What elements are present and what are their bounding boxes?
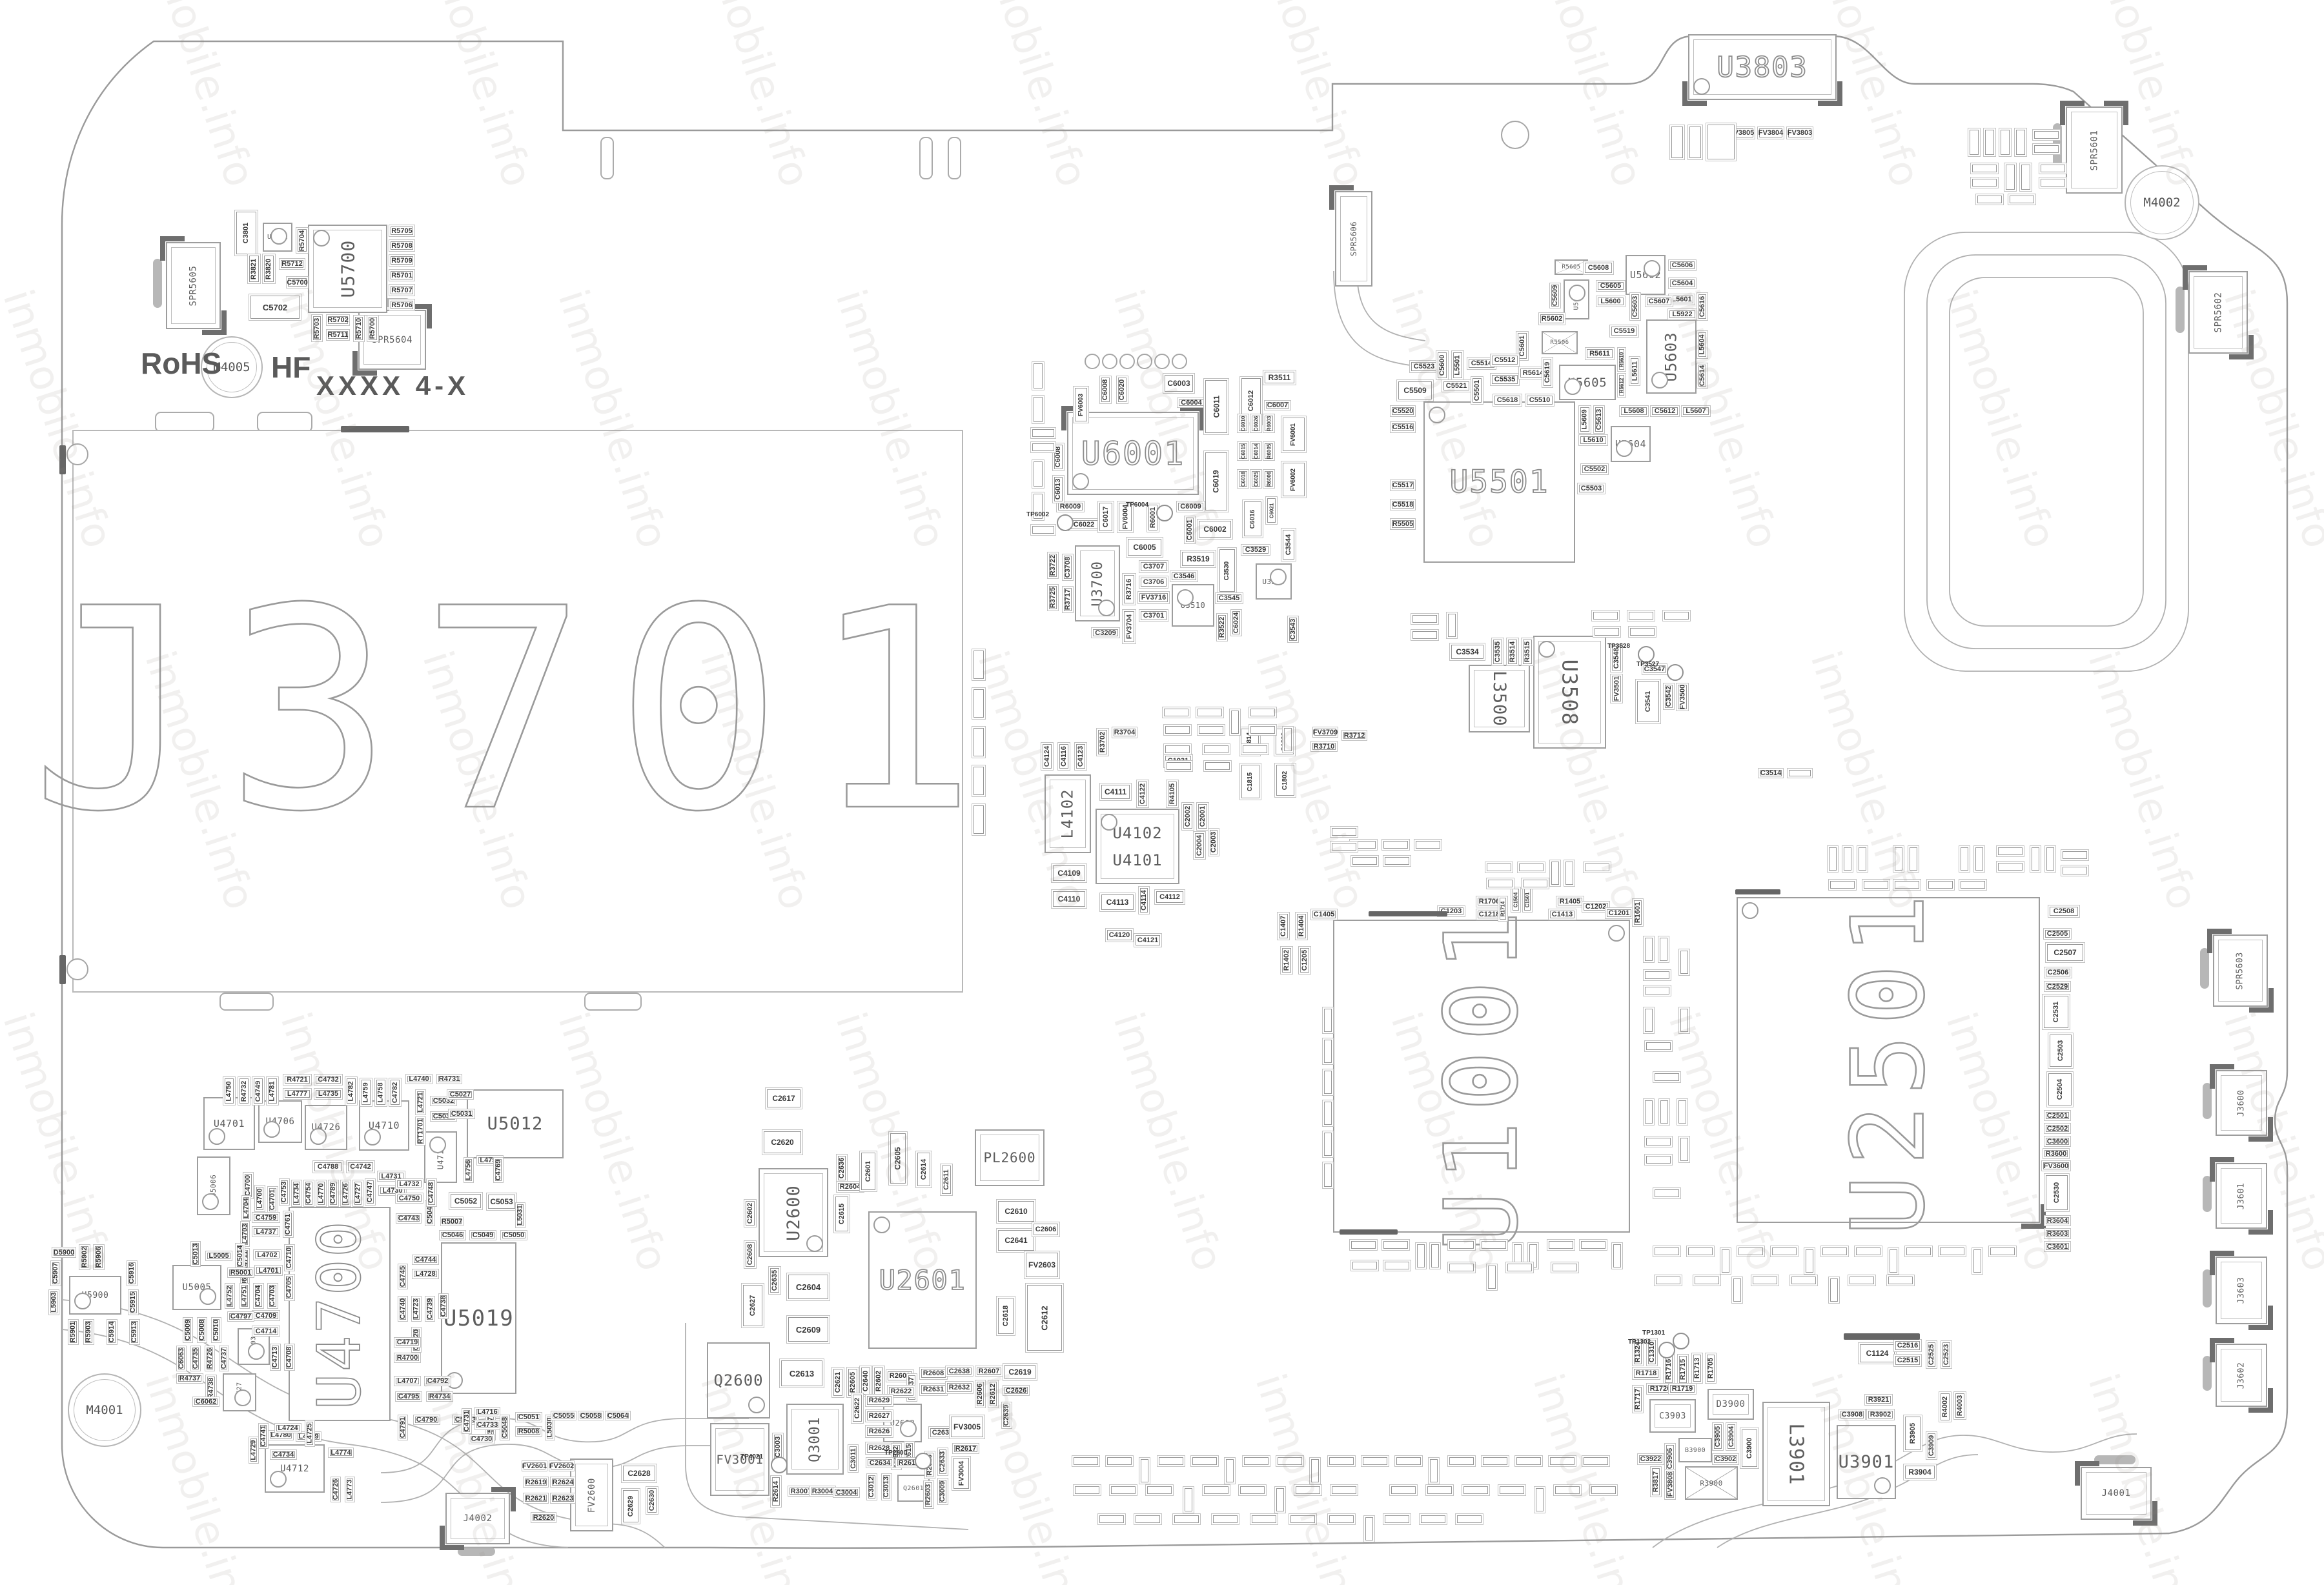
component-c4754: C4754 xyxy=(303,1180,314,1207)
component-c2002: C2002 xyxy=(1181,802,1194,831)
unlabeled-part xyxy=(1249,707,1277,718)
pin1-dot xyxy=(74,1293,91,1309)
component-c5618: C5618 xyxy=(1493,394,1522,407)
unlabeled-part xyxy=(1643,1098,1655,1126)
component-label: C6015 xyxy=(1240,443,1246,459)
component-label: FV3004 xyxy=(957,1461,965,1486)
component-c6010: C6010 xyxy=(1237,414,1249,433)
unlabeled-part xyxy=(2004,163,2017,192)
unlabeled-part xyxy=(1322,1131,1334,1158)
corner-bracket xyxy=(2133,1501,2157,1526)
corner-bracket xyxy=(160,236,185,261)
corner-bracket xyxy=(2229,335,2254,359)
component-label: C4709 xyxy=(256,1312,276,1320)
unlabeled-part xyxy=(1446,612,1458,639)
component-label: C4747 xyxy=(367,1182,374,1202)
component-label: L4701 xyxy=(258,1267,278,1275)
component-label: C4120 xyxy=(1109,931,1130,939)
component-label: C5050 xyxy=(504,1231,524,1239)
unlabeled-part xyxy=(1737,1246,1765,1257)
component-r3725: R3725 xyxy=(1047,584,1059,611)
component-label: C5501 xyxy=(1473,380,1481,401)
component-c5048: C5048 xyxy=(500,1415,510,1440)
component-l4700: L4700 xyxy=(254,1185,265,1212)
component-label: R3904 xyxy=(1908,1468,1931,1477)
component-label: R5008 xyxy=(518,1428,539,1435)
component-label: C4121 xyxy=(1137,936,1158,944)
component-l4752: L4752 xyxy=(225,1283,235,1309)
pin1-dot xyxy=(234,1389,251,1406)
component-c4114: C4114 xyxy=(1138,886,1150,914)
component-label: L4781 xyxy=(269,1081,276,1101)
component-label: C5523 xyxy=(1414,363,1434,370)
unlabeled-part xyxy=(1381,1239,1410,1251)
component-c3801: C3801 xyxy=(234,210,258,256)
component-l4707: L4707 xyxy=(394,1376,421,1386)
unlabeled-part xyxy=(1447,1239,1476,1251)
component-c5520: C5520 xyxy=(1390,405,1416,417)
component-r3519: R3519 xyxy=(1180,550,1216,568)
component-l5611: L5611 xyxy=(1629,356,1640,386)
unlabeled-part xyxy=(1030,427,1056,439)
pin1-dot xyxy=(1072,473,1089,490)
component-label: C3209 xyxy=(1095,629,1116,637)
component-c4110: C4110 xyxy=(1051,889,1087,909)
test-point-label: TP6004 xyxy=(1126,501,1148,509)
component-label: C4110 xyxy=(1058,894,1081,904)
component-label: R5711 xyxy=(328,331,349,339)
component-label: R2621 xyxy=(525,1495,546,1502)
test-point-label: TP1301 xyxy=(1642,1329,1665,1337)
component-label: R6006 xyxy=(1266,471,1272,487)
test-point-tp1301 xyxy=(1673,1333,1689,1349)
component-u4713: U4713 xyxy=(424,1131,457,1183)
component-label: R2624 xyxy=(553,1479,573,1486)
component-c4726: C4726 xyxy=(331,1477,341,1502)
component-label: C4733 xyxy=(477,1421,498,1429)
pin1-dot xyxy=(270,228,287,245)
board-slot xyxy=(948,137,961,179)
mounting-hole-m4002: M4002 xyxy=(2125,165,2199,240)
component-c3530: C3530 xyxy=(1218,547,1237,594)
unlabeled-part xyxy=(1534,1486,1545,1513)
component-c6008: C6008 xyxy=(1099,376,1112,404)
component-c3545: C3545 xyxy=(1215,592,1243,604)
unlabeled-part xyxy=(1289,1513,1317,1525)
component-c3902: C3902 xyxy=(1712,1453,1739,1465)
unlabeled-part xyxy=(1165,760,1193,772)
corner-bracket xyxy=(491,1487,516,1511)
component-u5012: U5012 xyxy=(467,1089,564,1158)
component-label: R1713 xyxy=(1693,1358,1701,1378)
corner-bracket xyxy=(2249,988,2274,1013)
board-slot xyxy=(600,137,614,179)
component-u5603: U5603 xyxy=(1646,319,1697,394)
component-label: C6062 xyxy=(196,1398,216,1406)
component-c2506: C2506 xyxy=(2044,967,2072,978)
component-label: FV2602 xyxy=(549,1462,575,1470)
component-c4748: C4748 xyxy=(426,1178,437,1207)
component-label: J3701 xyxy=(30,550,1004,873)
component-label: C4726 xyxy=(332,1479,340,1500)
component-label: C4730 xyxy=(471,1435,492,1443)
component-c6025: C6025 xyxy=(1250,469,1262,489)
component-c3529: C3529 xyxy=(1241,544,1270,556)
corner-bracket xyxy=(2210,1251,2234,1275)
component-label: R5707 xyxy=(391,287,412,294)
component-c4747: C4747 xyxy=(365,1178,376,1206)
component-label: R3717 xyxy=(1064,589,1072,610)
component-label: L4721 xyxy=(417,1092,425,1112)
component-c2608: C2608 xyxy=(744,1240,757,1269)
component-r5703: R5703 xyxy=(311,314,323,342)
component-j3701: J3701 xyxy=(72,430,963,993)
component-label: C3544 xyxy=(1285,534,1292,555)
unlabeled-part xyxy=(1351,1260,1379,1271)
component-u5602: U5602 xyxy=(1626,255,1666,295)
unlabeled-part xyxy=(1322,1069,1334,1096)
component-label: C3903 xyxy=(1659,1411,1686,1421)
component-r3522: R3522 xyxy=(1216,613,1228,641)
component-label: C2608 xyxy=(746,1244,754,1265)
component-label: C3003 xyxy=(774,1437,782,1457)
component-label: C4797 xyxy=(230,1313,251,1320)
via-hole xyxy=(1137,354,1152,369)
component-c2615: C2615 xyxy=(833,1195,850,1233)
component-c6004: C6004 xyxy=(1177,398,1206,408)
component-label: R3522 xyxy=(1218,617,1226,638)
component-c2634: C2634 xyxy=(866,1457,894,1468)
component-c1124: C1124 xyxy=(1858,1342,1897,1364)
component-label: C2627 xyxy=(749,1295,757,1316)
component-c2525: C2525 xyxy=(1926,1340,1937,1369)
component-label: FV3704 xyxy=(1125,614,1133,640)
component-u5600: U5600 xyxy=(1564,279,1589,319)
mounting-hole-m4001: M4001 xyxy=(68,1373,141,1447)
component-c2601: C2601 xyxy=(859,1151,877,1192)
unlabeled-part xyxy=(972,765,986,797)
component-label: C4745 xyxy=(399,1266,407,1287)
component-label: R5706 xyxy=(391,301,412,309)
component-c2523: C2523 xyxy=(1941,1340,1952,1369)
component-label: C4703 xyxy=(269,1286,277,1306)
component-l4724: L4724 xyxy=(274,1423,301,1433)
pin1-dot xyxy=(1429,407,1445,423)
component-label: L4723 xyxy=(413,1298,420,1318)
component-c3701: C3701 xyxy=(1139,609,1168,622)
corner-bracket xyxy=(2021,1204,2046,1229)
component-label: C6022 xyxy=(1074,521,1094,529)
connector-clip xyxy=(2094,1455,2135,1464)
component-c2614: C2614 xyxy=(915,1151,932,1188)
component-c5614: C5614 xyxy=(1697,363,1708,389)
component-r3904: R3904 xyxy=(1903,1464,1937,1480)
component-label: C3535 xyxy=(1494,641,1502,662)
component-label: L5607 xyxy=(1686,407,1706,415)
component-c2508: C2508 xyxy=(2048,905,2080,918)
component-c5027: C5027 xyxy=(447,1089,474,1100)
unlabeled-part xyxy=(1190,1455,1219,1467)
component-spr5603: SPR5603 xyxy=(2213,934,2268,1007)
unlabeled-part xyxy=(2044,845,2056,873)
component-label: J4002 xyxy=(464,1513,493,1524)
component-l4704: L4704 xyxy=(241,1195,251,1221)
pin1-dot xyxy=(1098,600,1115,616)
component-label: R1715 xyxy=(1679,1359,1687,1380)
component-label: C4769 xyxy=(494,1160,502,1180)
component-label: RT1701 xyxy=(417,1118,425,1144)
component-fv2601: FV2601 xyxy=(522,1460,547,1471)
component-label: R5901 xyxy=(70,1322,77,1342)
unlabeled-part xyxy=(1564,860,1575,887)
component-c5600: C5600 xyxy=(1436,350,1449,380)
component-label: R3817 xyxy=(1652,1471,1660,1492)
unlabeled-part xyxy=(1203,760,1232,772)
component-label: R5506 xyxy=(1551,339,1569,346)
component-label: R5612 xyxy=(1619,378,1625,393)
component-label: L4770 xyxy=(318,1183,325,1203)
component-label: R2602 xyxy=(875,1371,882,1391)
component-label: C5702 xyxy=(263,303,287,312)
component-label: L5903 xyxy=(50,1292,58,1312)
component-label: C2503 xyxy=(2057,1040,2064,1061)
component-c2515: C2515 xyxy=(1893,1354,1922,1367)
component-label: R1404 xyxy=(1298,916,1305,936)
component-c2639: C2639 xyxy=(1001,1402,1012,1429)
component-c4713: C4713 xyxy=(270,1344,281,1371)
component-label: U4712 xyxy=(280,1464,309,1474)
component-c4701: C4701 xyxy=(267,1186,278,1213)
component-label: FV3709 xyxy=(1313,729,1338,736)
component-c5051: C5051 xyxy=(515,1412,542,1422)
component-label: R1402 xyxy=(1283,950,1290,971)
component-label: R5906 xyxy=(95,1247,103,1267)
component-label: R2614 xyxy=(772,1481,780,1502)
component-c2609: C2609 xyxy=(786,1315,830,1344)
component-label: FV6003 xyxy=(1077,393,1085,416)
unlabeled-part xyxy=(1163,724,1192,736)
component-label: SPR5605 xyxy=(188,265,198,306)
component-label: C2002 xyxy=(1184,806,1192,827)
component-label: R1718 xyxy=(1636,1369,1656,1377)
unlabeled-part xyxy=(1628,626,1656,638)
corner-bracket xyxy=(2248,1210,2273,1235)
component-u4102: U4102U4101 xyxy=(1096,809,1179,884)
component-label: C6024 xyxy=(1232,612,1240,633)
component-c2630: C2630 xyxy=(646,1486,658,1515)
component-l4756: L4756 xyxy=(464,1157,474,1183)
component-label: C6021 xyxy=(1269,503,1274,518)
component-c6024: C6024 xyxy=(1230,609,1242,636)
component-r2607: R2607 xyxy=(975,1366,1003,1377)
component-label: L4729 xyxy=(250,1440,258,1460)
component-l4770: L4770 xyxy=(316,1180,327,1207)
component-label: R5903 xyxy=(85,1322,93,1342)
via-hole xyxy=(66,958,88,980)
component-c5517: C5517 xyxy=(1390,480,1416,491)
component-label: C2621 xyxy=(834,1372,842,1393)
component-c2628: C2628 xyxy=(621,1464,657,1483)
component-label: SPR5602 xyxy=(2213,292,2223,333)
component-label: C2501 xyxy=(2047,1112,2068,1120)
component-label: C3534 xyxy=(1456,647,1478,656)
component-c2507: C2507 xyxy=(2045,942,2085,963)
component-label: C6009 xyxy=(1180,503,1201,510)
component-r3603: R3603 xyxy=(2044,1228,2071,1239)
component-c5503: C5503 xyxy=(1577,483,1605,494)
unlabeled-part xyxy=(1593,626,1621,638)
pin1-dot xyxy=(270,1471,287,1488)
component-c4109: C4109 xyxy=(1051,863,1087,883)
unlabeled-part xyxy=(1505,1262,1534,1273)
component-l4735: L4735 xyxy=(314,1088,343,1100)
component-rt1701: RT1701 xyxy=(415,1116,426,1146)
test-point-label: TP3528 xyxy=(1607,643,1630,650)
component-label: R2629 xyxy=(869,1397,890,1404)
component-u5605: U5605 xyxy=(1559,365,1616,400)
component-c2629: C2629 xyxy=(621,1488,640,1524)
component-label: L4707 xyxy=(397,1377,417,1385)
component-c2501: C2501 xyxy=(2044,1110,2071,1121)
component-u4727: U4727 xyxy=(223,1373,256,1411)
component-c3012: C3012 xyxy=(866,1473,877,1500)
component-label: R5702 xyxy=(327,316,348,324)
component-label: C4789 xyxy=(330,1183,338,1204)
unlabeled-part xyxy=(1109,1484,1137,1496)
unlabeled-part xyxy=(1968,128,1981,157)
unlabeled-part xyxy=(1330,826,1358,838)
component-label: U3803 xyxy=(1717,51,1808,84)
component-c4124: C4124 xyxy=(1041,742,1054,771)
component-label: C1504 xyxy=(1513,892,1519,907)
component-label: R2608 xyxy=(923,1369,944,1377)
component-label: C6001 xyxy=(1186,520,1194,540)
component-r3702: R3702 xyxy=(1096,728,1109,756)
component-label: R2632 xyxy=(949,1384,970,1391)
component-label: R5001 xyxy=(230,1269,251,1277)
component-r2619: R2619 xyxy=(523,1477,549,1488)
pin1-dot xyxy=(202,1193,219,1210)
component-c4732: C4732 xyxy=(314,1074,343,1085)
component-r3604: R3604 xyxy=(2044,1215,2071,1226)
test-point-label: TP4021 xyxy=(740,1453,763,1460)
component-u5005: U5005 xyxy=(172,1265,221,1310)
component-c4750: C4750 xyxy=(395,1193,423,1204)
unlabeled-part xyxy=(2061,865,2089,876)
component-label: C4122 xyxy=(1139,783,1147,804)
component-b3900: B3900 xyxy=(1678,1438,1712,1462)
component-r1402: R1402 xyxy=(1280,946,1293,974)
component-c5913: C5913 xyxy=(129,1319,140,1345)
component-label: C3012 xyxy=(868,1477,876,1497)
test-point-tp1302 xyxy=(1658,1342,1675,1358)
unlabeled-part xyxy=(1196,707,1224,718)
component-label: C1202 xyxy=(1585,903,1606,911)
component-fv3808: FV3808 xyxy=(1664,1469,1676,1500)
component-c4121: C4121 xyxy=(1134,933,1162,947)
component-r3514: R3514 xyxy=(1506,638,1519,666)
component-c2635: C2635 xyxy=(768,1266,781,1295)
component-label: R2619 xyxy=(525,1479,546,1486)
component-c3514: C3514 xyxy=(1758,768,1784,778)
unlabeled-part xyxy=(1030,524,1056,536)
component-c4749: C4749 xyxy=(252,1076,265,1105)
corner-bracket xyxy=(2075,1461,2099,1486)
component-c5916: C5916 xyxy=(127,1260,138,1286)
component-label: R3702 xyxy=(1099,732,1106,752)
component-c4731: C4731 xyxy=(462,1408,472,1434)
unlabeled-part xyxy=(1611,1242,1623,1269)
component-label: U6001 xyxy=(1081,435,1185,472)
unlabeled-part xyxy=(1276,1455,1304,1467)
component-c6007: C6007 xyxy=(1264,400,1291,410)
component-label: C4792 xyxy=(427,1377,448,1385)
component-label: C4738 xyxy=(440,1296,447,1317)
component-r5710: R5710 xyxy=(353,315,365,342)
component-label: C2638 xyxy=(949,1368,970,1375)
component-r2608: R2608 xyxy=(919,1367,948,1380)
unlabeled-part xyxy=(1908,845,1919,873)
unlabeled-part xyxy=(1999,128,2012,157)
component-c2606: C2606 xyxy=(1032,1222,1060,1237)
component-label: R1405 xyxy=(1560,898,1580,905)
component-l3901: L3901 xyxy=(1762,1402,1830,1506)
component-label: C3542 xyxy=(1665,686,1673,707)
corner-bracket xyxy=(2248,1117,2273,1142)
component-c1205: C1205 xyxy=(1298,946,1311,974)
component-c4788: C4788 xyxy=(312,1160,343,1173)
component-label: C2001 xyxy=(1199,806,1207,827)
component-label: L4774 xyxy=(331,1449,351,1457)
component-label: C6002 xyxy=(1203,525,1226,534)
component-r2620: R2620 xyxy=(531,1512,556,1523)
pin1-dot xyxy=(1874,1477,1891,1494)
component-label: U2601 xyxy=(879,1264,966,1296)
unlabeled-part xyxy=(1032,361,1045,390)
component-label: C3600 xyxy=(2047,1138,2068,1146)
component-c4739: C4739 xyxy=(425,1296,435,1322)
component-fv3500: FV3500 xyxy=(1676,683,1689,711)
component-r5711: R5711 xyxy=(326,329,350,341)
component-label: R2605 xyxy=(849,1372,857,1393)
unlabeled-part xyxy=(1162,707,1190,718)
component-r3820: R3820 xyxy=(262,254,276,284)
component-label: L4750 xyxy=(225,1081,233,1101)
component-c3922: C3922 xyxy=(1637,1453,1664,1465)
component-c3708: C3708 xyxy=(1062,554,1074,581)
component-label: U2501 xyxy=(1830,884,1947,1235)
component-label: C3909 xyxy=(1928,1435,1935,1456)
component-c6003: C6003 xyxy=(1163,373,1195,394)
component-label: R6001 xyxy=(1149,507,1157,528)
component-label: C5514 xyxy=(1471,359,1492,367)
component-label: C3011 xyxy=(850,1448,857,1469)
component-u2600: U2600 xyxy=(759,1168,828,1257)
unlabeled-part xyxy=(1959,845,1970,873)
unlabeled-part xyxy=(1583,862,1611,873)
component-fv3005: FV3005 xyxy=(949,1415,985,1439)
pin1-dot xyxy=(1270,569,1287,585)
unlabeled-part xyxy=(1886,1275,1915,1286)
component-c2621: C2621 xyxy=(831,1367,844,1398)
component-label: U2600 xyxy=(784,1185,804,1241)
unlabeled-part xyxy=(1480,1239,1508,1251)
component-label: C4114 xyxy=(1140,890,1148,911)
component-label: C4116 xyxy=(1060,746,1068,767)
component-c5050: C5050 xyxy=(500,1230,527,1240)
component-c5049: C5049 xyxy=(469,1230,496,1240)
component-r3710: R3710 xyxy=(1310,741,1338,752)
